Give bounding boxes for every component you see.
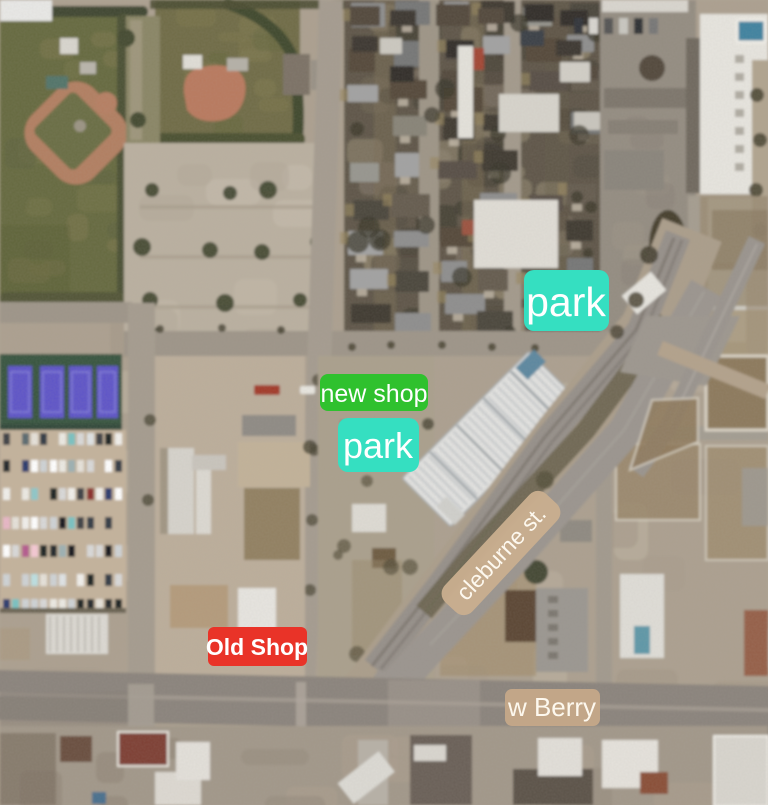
svg-text:park: park <box>526 279 606 325</box>
svg-text:Old Shop: Old Shop <box>206 634 308 660</box>
svg-text:w Berry: w Berry <box>507 692 596 722</box>
svg-text:new shop: new shop <box>320 380 427 408</box>
svg-text:park: park <box>343 425 414 466</box>
